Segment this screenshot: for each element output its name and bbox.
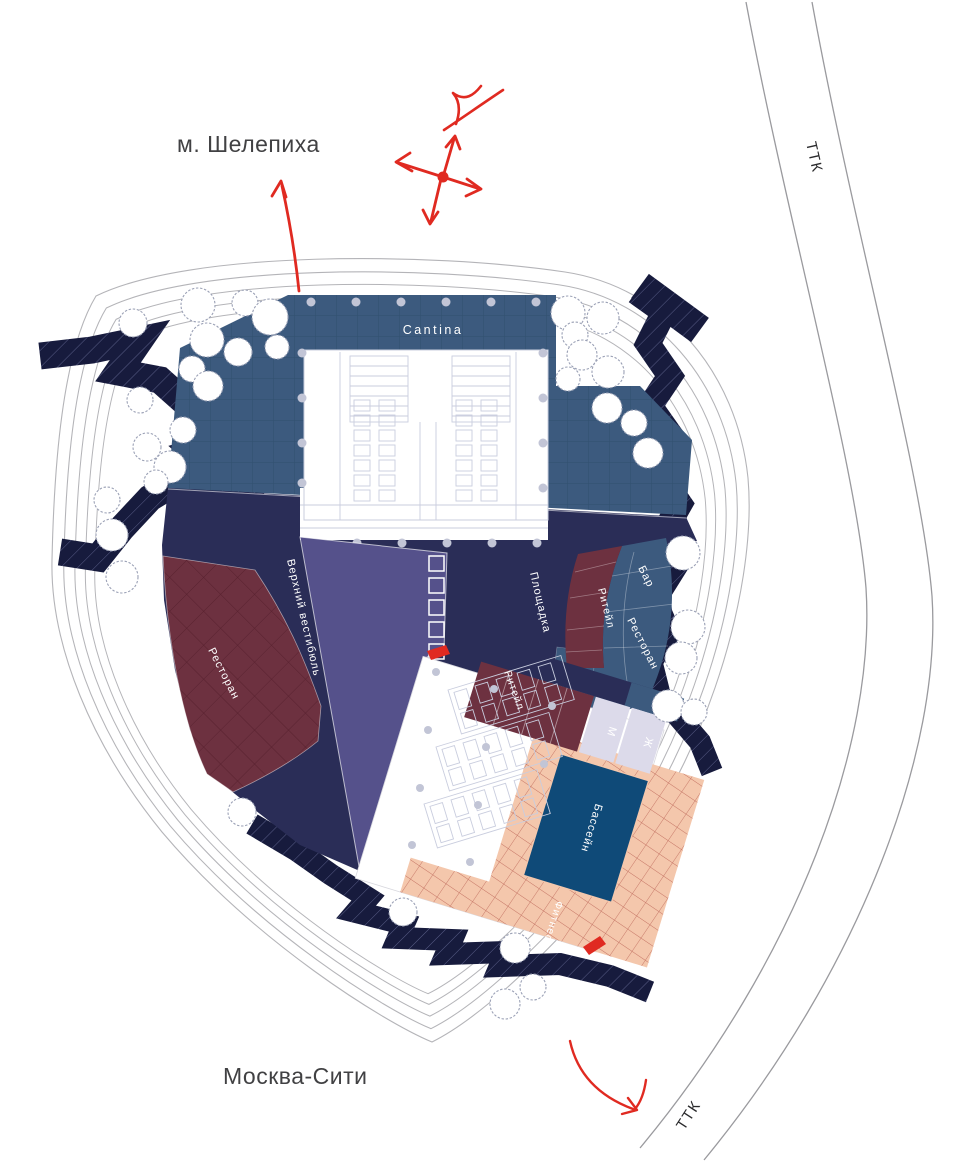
zone-label-cantina: Cantina (403, 323, 464, 337)
label-metro-station: м. Шелепиха (177, 131, 320, 157)
arrow-to-metro (282, 186, 299, 291)
label-ttk-bottom: ТТК (673, 1097, 704, 1133)
site-plan: Cantina М Ж Бассейн (0, 0, 956, 1162)
north-compass (396, 86, 503, 224)
north-letter-icon (444, 86, 503, 130)
label-moscow-city: Москва-Сити (223, 1063, 368, 1089)
arrow-to-city (570, 1041, 646, 1114)
site-plan-canvas: Cantina М Ж Бассейн (0, 0, 956, 1162)
road-edge-right (704, 2, 933, 1160)
upper-building-footprint (304, 350, 548, 520)
label-ttk-top: ТТК (802, 140, 826, 175)
upper-building (300, 350, 548, 540)
ring-road (640, 2, 933, 1160)
arrow-to-metro-head (272, 181, 286, 197)
